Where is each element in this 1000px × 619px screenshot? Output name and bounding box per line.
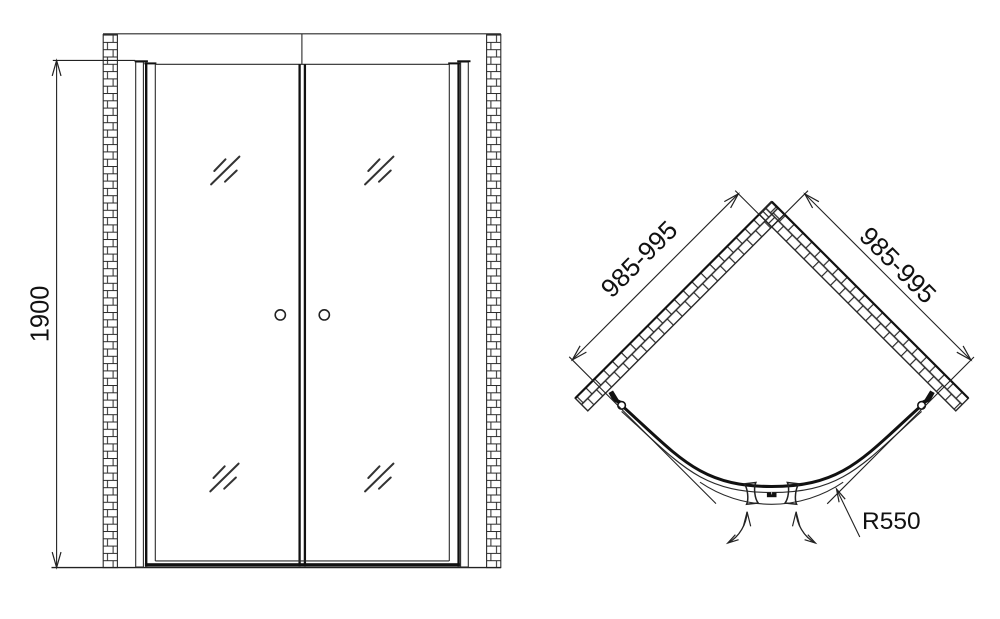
svg-text:R550: R550 <box>862 508 921 535</box>
svg-text:1900: 1900 <box>27 286 55 343</box>
